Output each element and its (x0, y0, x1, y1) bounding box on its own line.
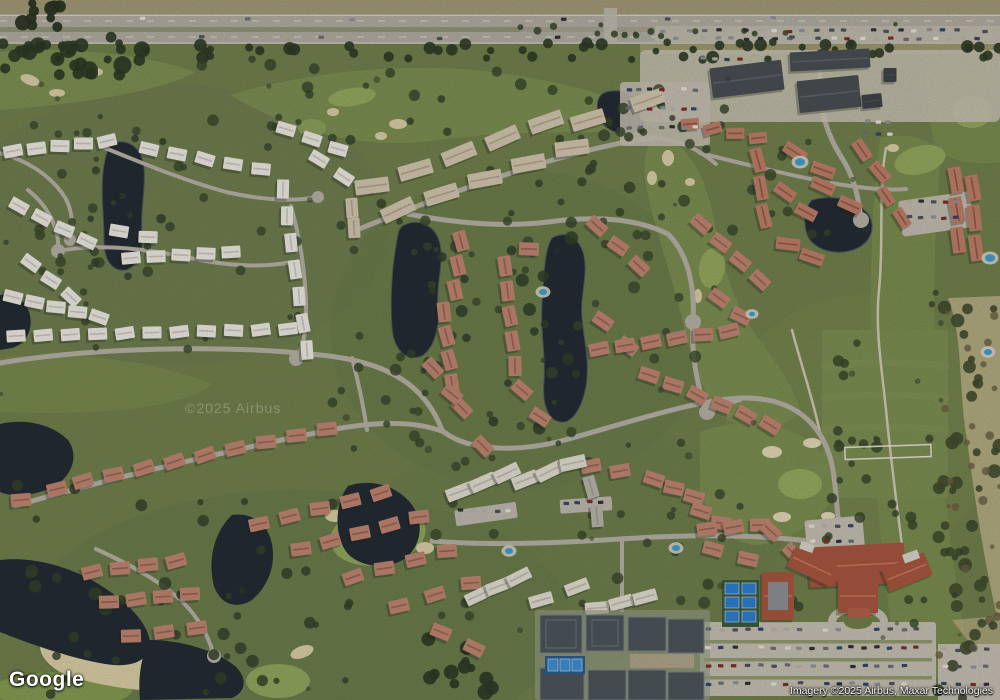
imagery-grain-texture (0, 0, 1000, 700)
map-canvas[interactable] (0, 0, 1000, 700)
google-logo[interactable]: Google (9, 668, 84, 692)
google-maps-satellite-view: ©2025 Airbus Google Imagery ©2025 Airbus… (0, 0, 1000, 700)
imagery-watermark: ©2025 Airbus (185, 400, 281, 416)
satellite-imagery (0, 0, 1000, 700)
imagery-attribution: Imagery ©2025 Airbus, Maxar Technologies (790, 685, 993, 697)
